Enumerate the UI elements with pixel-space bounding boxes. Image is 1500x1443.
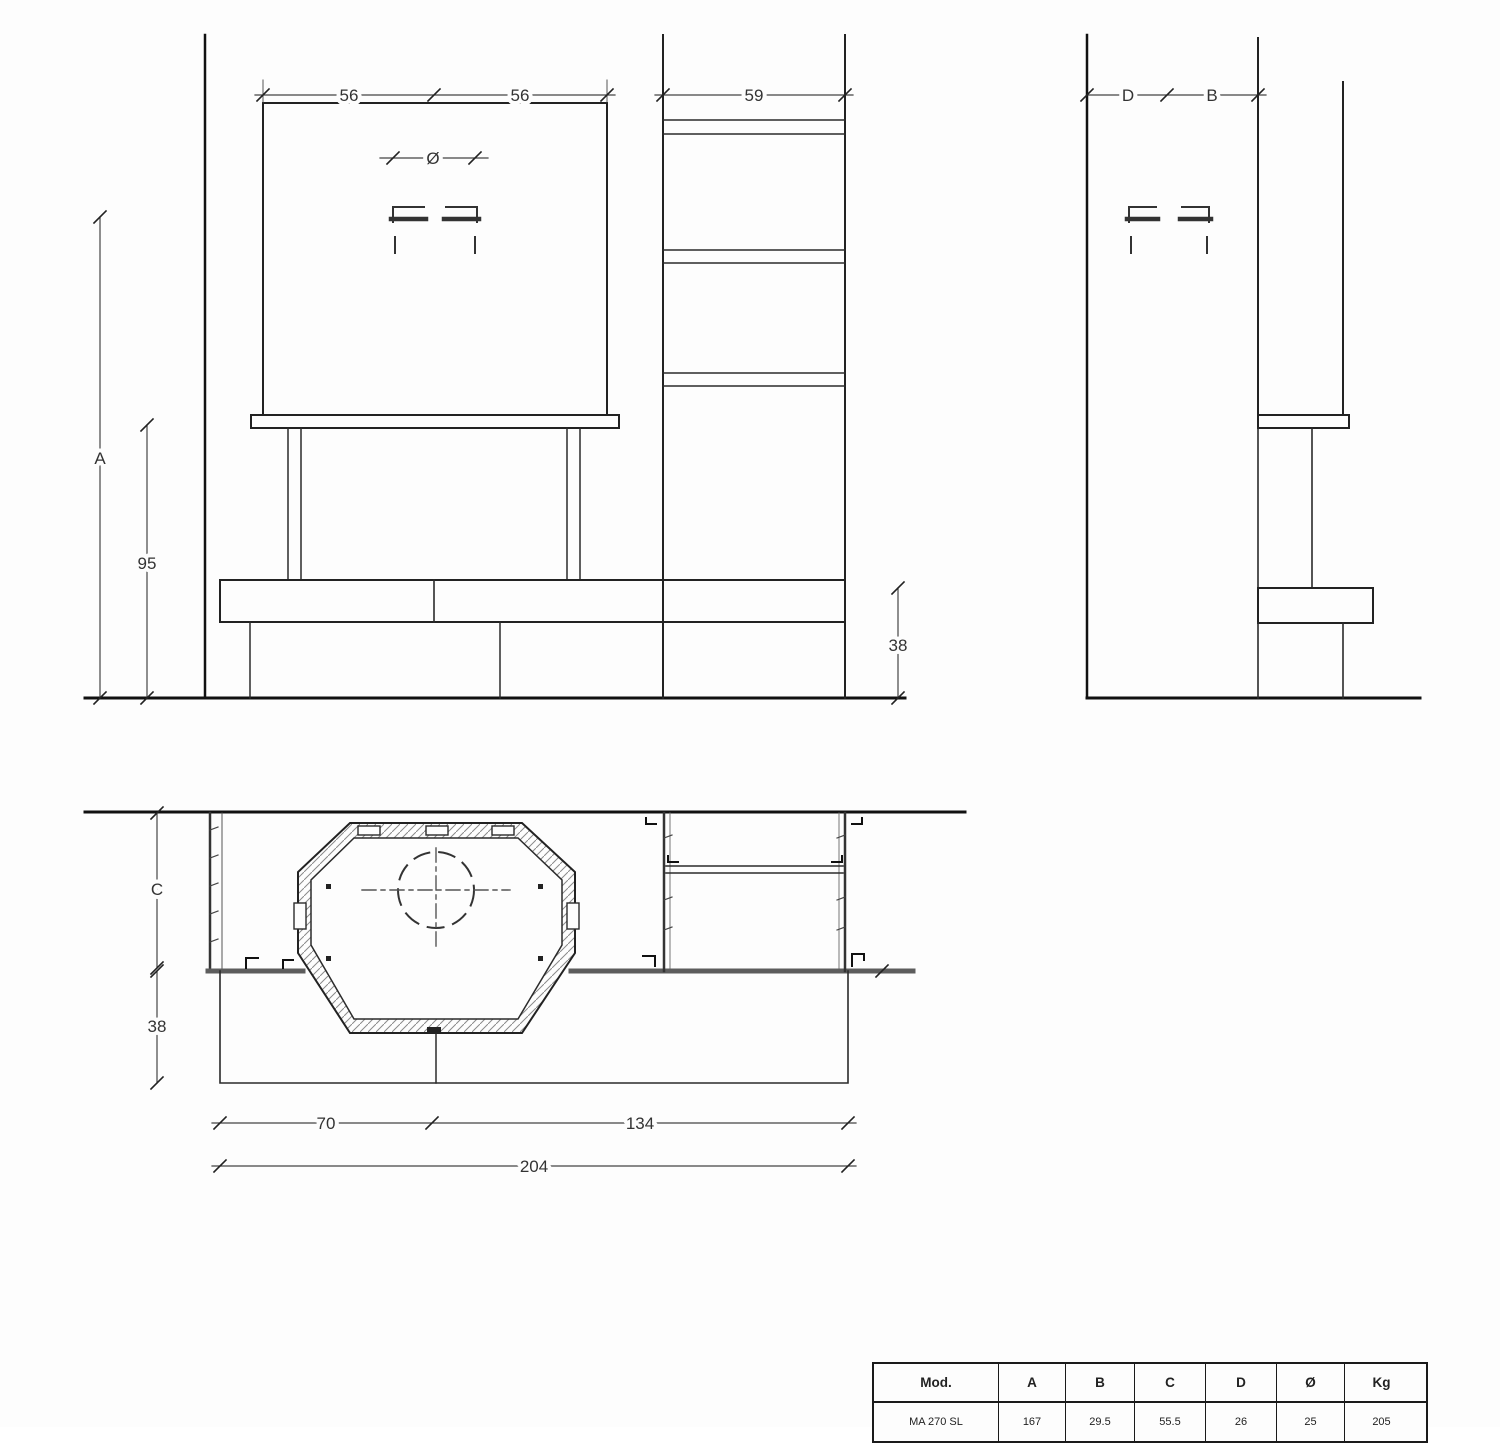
header-model: Mod. [874, 1364, 998, 1401]
firebox-octagon [294, 823, 579, 1083]
dim-flue-diameter: Ø [380, 149, 488, 168]
base-lines [250, 622, 500, 698]
column-plan [664, 813, 845, 971]
front-center-mark [427, 1027, 441, 1034]
value-d: 26 [1205, 1403, 1276, 1441]
bench-slab [220, 580, 845, 622]
dim-bench-depth: 38 [148, 965, 167, 1089]
pedestal-lines [1258, 428, 1312, 588]
dim-label: C [151, 880, 163, 899]
dim-label: A [94, 449, 106, 468]
header-weight: Kg [1344, 1364, 1418, 1401]
header-d: D [1205, 1364, 1276, 1401]
dim-column-width: 59 [655, 86, 853, 105]
dim-widths: 70 134 [212, 1114, 856, 1133]
dim-label: B [1206, 86, 1217, 105]
value-weight: 205 [1344, 1403, 1418, 1441]
hood-bottom-band [251, 415, 619, 428]
plan-view: C 38 70 134 204 [85, 807, 965, 1176]
side-view: D B [1081, 35, 1420, 698]
dim-label: 56 [340, 86, 359, 105]
dim-hood-height: 95 [138, 419, 157, 704]
dim-depth-c: C [151, 807, 163, 974]
dim-label: 38 [148, 1017, 167, 1036]
header-diameter: Ø [1276, 1364, 1344, 1401]
dim-label: 70 [317, 1114, 336, 1133]
front-view: 56 56 59 Ø A [85, 35, 907, 704]
dim-label: 56 [511, 86, 530, 105]
dim-label: 204 [520, 1157, 548, 1176]
flue-outlet-symbol [391, 207, 479, 253]
dim-total-height: A [94, 211, 106, 704]
stone-column-joints [663, 120, 845, 386]
header-c: C [1134, 1364, 1205, 1401]
dim-label: D [1122, 86, 1134, 105]
dim-label: 59 [745, 86, 764, 105]
spec-table-header-row: Mod. A B C D Ø Kg [874, 1364, 1426, 1401]
dim-label: 95 [138, 554, 157, 573]
value-diameter: 25 [1276, 1403, 1344, 1441]
dim-label: 134 [626, 1114, 654, 1133]
technical-drawing-page: 56 56 59 Ø A [0, 0, 1500, 1427]
base-lines [1258, 623, 1343, 698]
hood-bottom-band [1258, 415, 1349, 428]
bench-slab-profile [1258, 588, 1373, 623]
fireplace-dimension-drawing: 56 56 59 Ø A [0, 0, 1500, 1427]
hood-legs [288, 428, 580, 580]
dim-label: 38 [889, 636, 908, 655]
header-a: A [998, 1364, 1065, 1401]
flue-outlet-symbol [1127, 207, 1211, 253]
spec-table: Mod. A B C D Ø Kg MA 270 SL 167 29.5 55.… [872, 1362, 1428, 1443]
dim-total-width: 204 [212, 1157, 856, 1176]
left-side-wall [210, 813, 222, 971]
header-b: B [1065, 1364, 1134, 1401]
value-b: 29.5 [1065, 1403, 1134, 1441]
spec-table-data-row: MA 270 SL 167 29.5 55.5 26 25 205 [874, 1401, 1426, 1441]
value-model: MA 270 SL [874, 1403, 998, 1441]
value-a: 167 [998, 1403, 1065, 1441]
dim-depths: D B [1081, 86, 1266, 105]
dim-hood-width: 56 56 [255, 80, 615, 105]
dim-label: Ø [426, 149, 439, 168]
dim-bench-height: 38 [889, 582, 908, 704]
value-c: 55.5 [1134, 1403, 1205, 1441]
